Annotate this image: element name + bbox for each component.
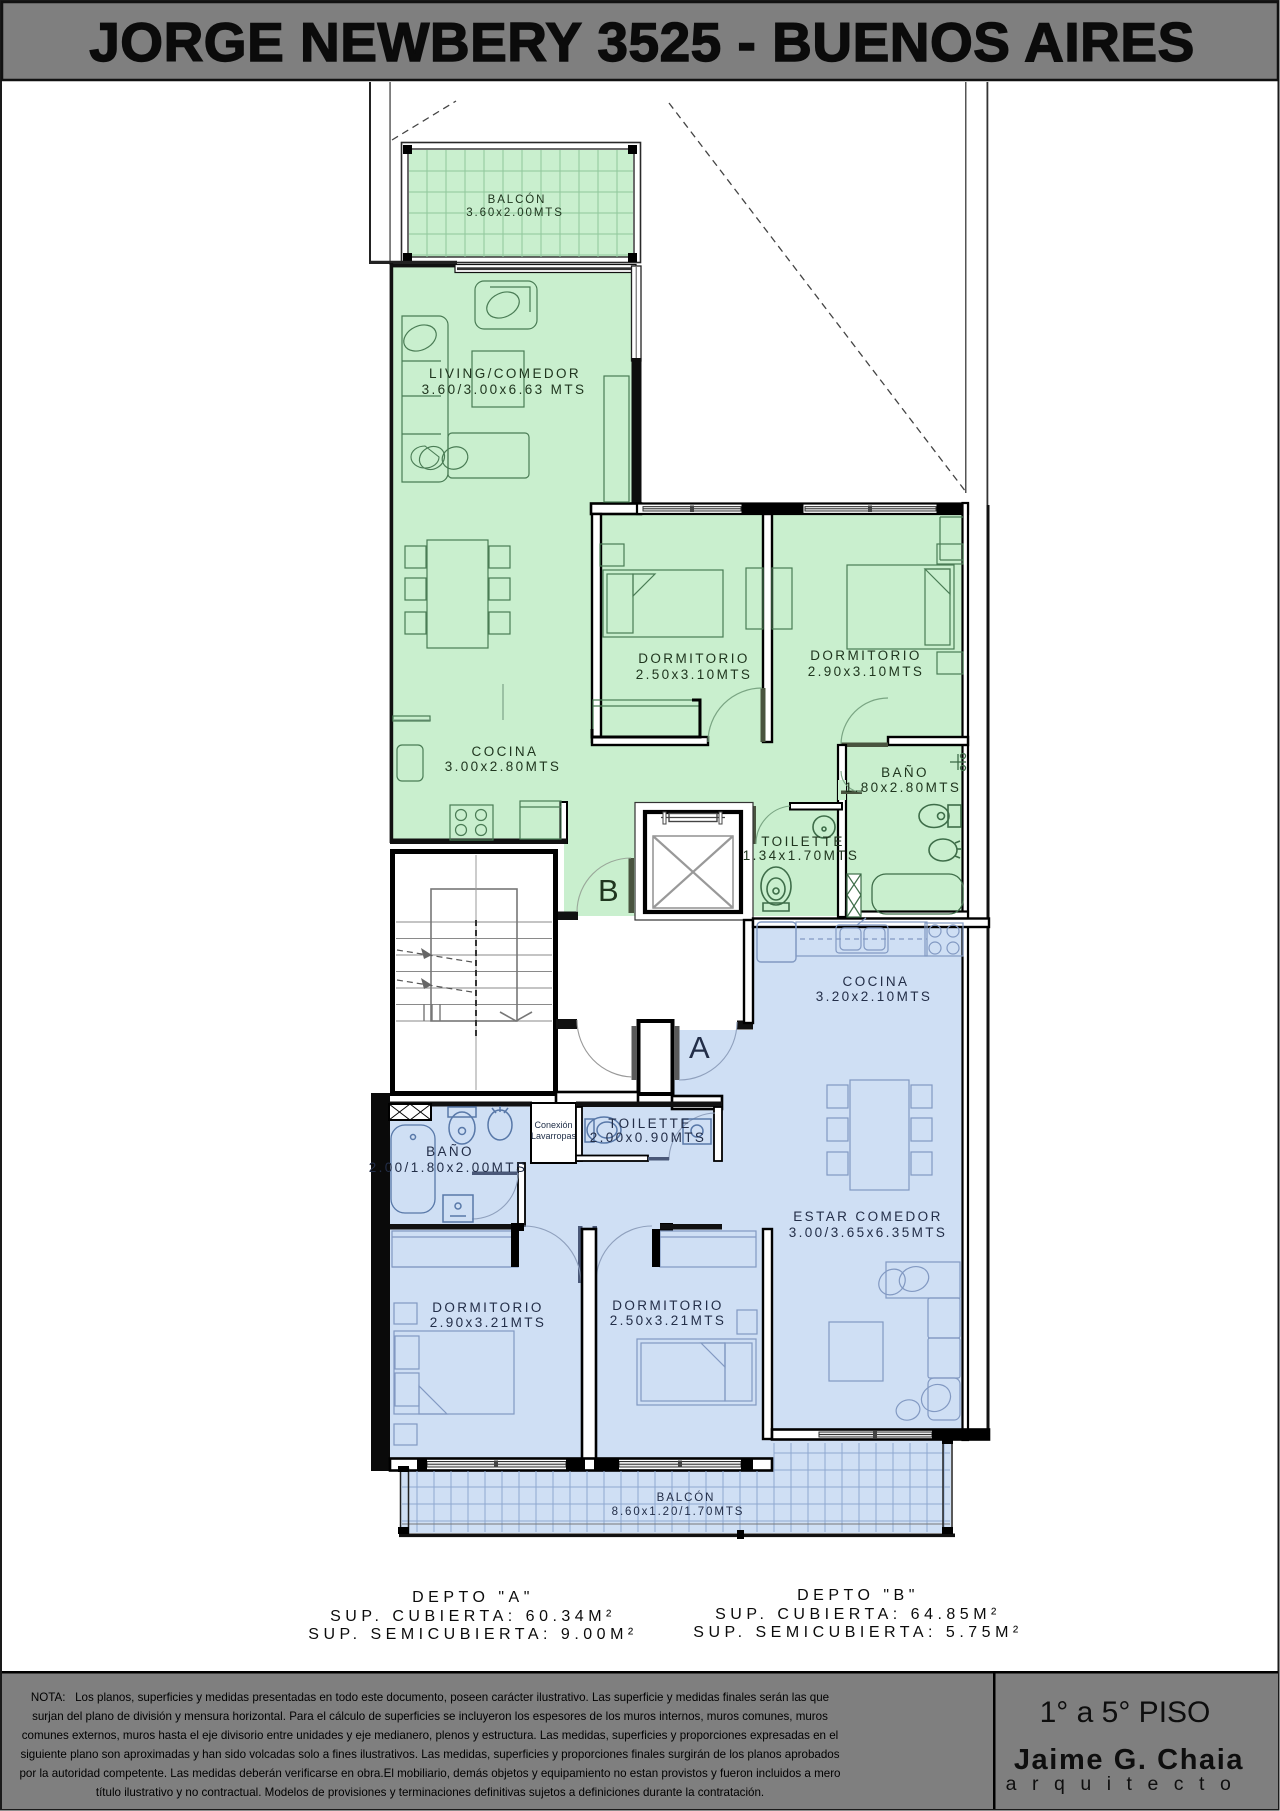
svg-text:COCINA: COCINA (472, 744, 539, 759)
svg-text:1.80x2.80MTS: 1.80x2.80MTS (845, 780, 962, 795)
svg-text:Jaime G. Chaia: Jaime G. Chaia (1014, 1744, 1244, 1776)
svg-text:BAÑO: BAÑO (881, 765, 929, 780)
svg-text:por la autoridad competente. L: por la autoridad competente. Las medidas… (19, 1767, 840, 1780)
svg-text:1° a 5° PISO: 1° a 5° PISO (1040, 1696, 1211, 1729)
svg-text:NOTA: Los planos, superficie: NOTA: Los planos, superficies y medidas … (31, 1691, 829, 1704)
svg-text:TOILETTE: TOILETTE (761, 834, 844, 849)
svg-text:2.00/1.80x2.00MTS: 2.00/1.80x2.00MTS (369, 1160, 528, 1175)
svg-text:surjan del plano de división y: surjan del plano de división y mensura h… (32, 1710, 828, 1723)
svg-text:arquitecto: arquitecto (1006, 1773, 1247, 1795)
svg-text:DORMITORIO: DORMITORIO (612, 1298, 724, 1313)
svg-text:A: A (689, 1030, 710, 1065)
svg-text:BALCÓN: BALCÓN (657, 1491, 716, 1504)
svg-text:SUP. SEMICUBIERTA: 9.00M²: SUP. SEMICUBIERTA: 9.00M² (308, 1626, 637, 1643)
svg-text:3.00/3.65x6.35MTS: 3.00/3.65x6.35MTS (789, 1225, 948, 1240)
svg-text:JORGE NEWBERY 3525 - BUENOS AI: JORGE NEWBERY 3525 - BUENOS AIRES (89, 11, 1195, 73)
svg-text:Conexión: Conexión (534, 1120, 572, 1130)
svg-text:siguiente plano son aproximada: siguiente plano son aproximadas y han si… (20, 1748, 839, 1761)
svg-text:2.90x3.21MTS: 2.90x3.21MTS (430, 1315, 547, 1330)
svg-text:3.60/3.00x6.63 MTS: 3.60/3.00x6.63 MTS (422, 382, 587, 397)
svg-text:comunes externos, muros hasta: comunes externos, muros hasta el eje div… (22, 1729, 839, 1742)
svg-text:DEPTO "A": DEPTO "A" (412, 1589, 534, 1606)
svg-text:2.50x3.10MTS: 2.50x3.10MTS (636, 667, 753, 682)
svg-text:DORMITORIO: DORMITORIO (810, 648, 922, 663)
svg-text:BALCÓN: BALCÓN (488, 193, 547, 206)
svg-text:2.90x3.10MTS: 2.90x3.10MTS (808, 664, 925, 679)
svg-text:título ilustrativo y no contra: título ilustrativo y no contractual. Mod… (96, 1786, 764, 1799)
svg-text:TOILETTE: TOILETTE (608, 1116, 691, 1131)
svg-text:1.34x1.70MTS: 1.34x1.70MTS (743, 848, 860, 863)
svg-text:SUP. CUBIERTA: 60.34M²: SUP. CUBIERTA: 60.34M² (330, 1608, 616, 1625)
svg-text:DORMITORIO: DORMITORIO (638, 651, 750, 666)
svg-text:3.20x2.10MTS: 3.20x2.10MTS (816, 989, 933, 1004)
svg-text:SUP. CUBIERTA: 64.85M²: SUP. CUBIERTA: 64.85M² (715, 1606, 1001, 1623)
svg-text:SUP. SEMICUBIERTA: 5.75M²: SUP. SEMICUBIERTA: 5.75M² (693, 1624, 1022, 1641)
svg-text:2.50x3.21MTS: 2.50x3.21MTS (610, 1313, 727, 1328)
svg-text:B: B (598, 873, 619, 908)
svg-text:8.60x1.20/1.70MTS: 8.60x1.20/1.70MTS (612, 1506, 745, 1518)
svg-text:COCINA: COCINA (843, 974, 910, 989)
svg-text:3.00x2.80MTS: 3.00x2.80MTS (445, 759, 562, 774)
svg-text:2.00x0.90MTS: 2.00x0.90MTS (590, 1130, 707, 1145)
svg-text:ESTAR COMEDOR: ESTAR COMEDOR (793, 1209, 942, 1224)
svg-text:3.60x2.00MTS: 3.60x2.00MTS (466, 207, 564, 219)
svg-text:DORMITORIO: DORMITORIO (432, 1300, 544, 1315)
svg-text:DEPTO "B": DEPTO "B" (797, 1587, 919, 1604)
svg-text:BAÑO: BAÑO (426, 1144, 474, 1159)
svg-text:Lavarropas: Lavarropas (531, 1131, 577, 1141)
svg-text:LIVING/COMEDOR: LIVING/COMEDOR (429, 366, 581, 381)
